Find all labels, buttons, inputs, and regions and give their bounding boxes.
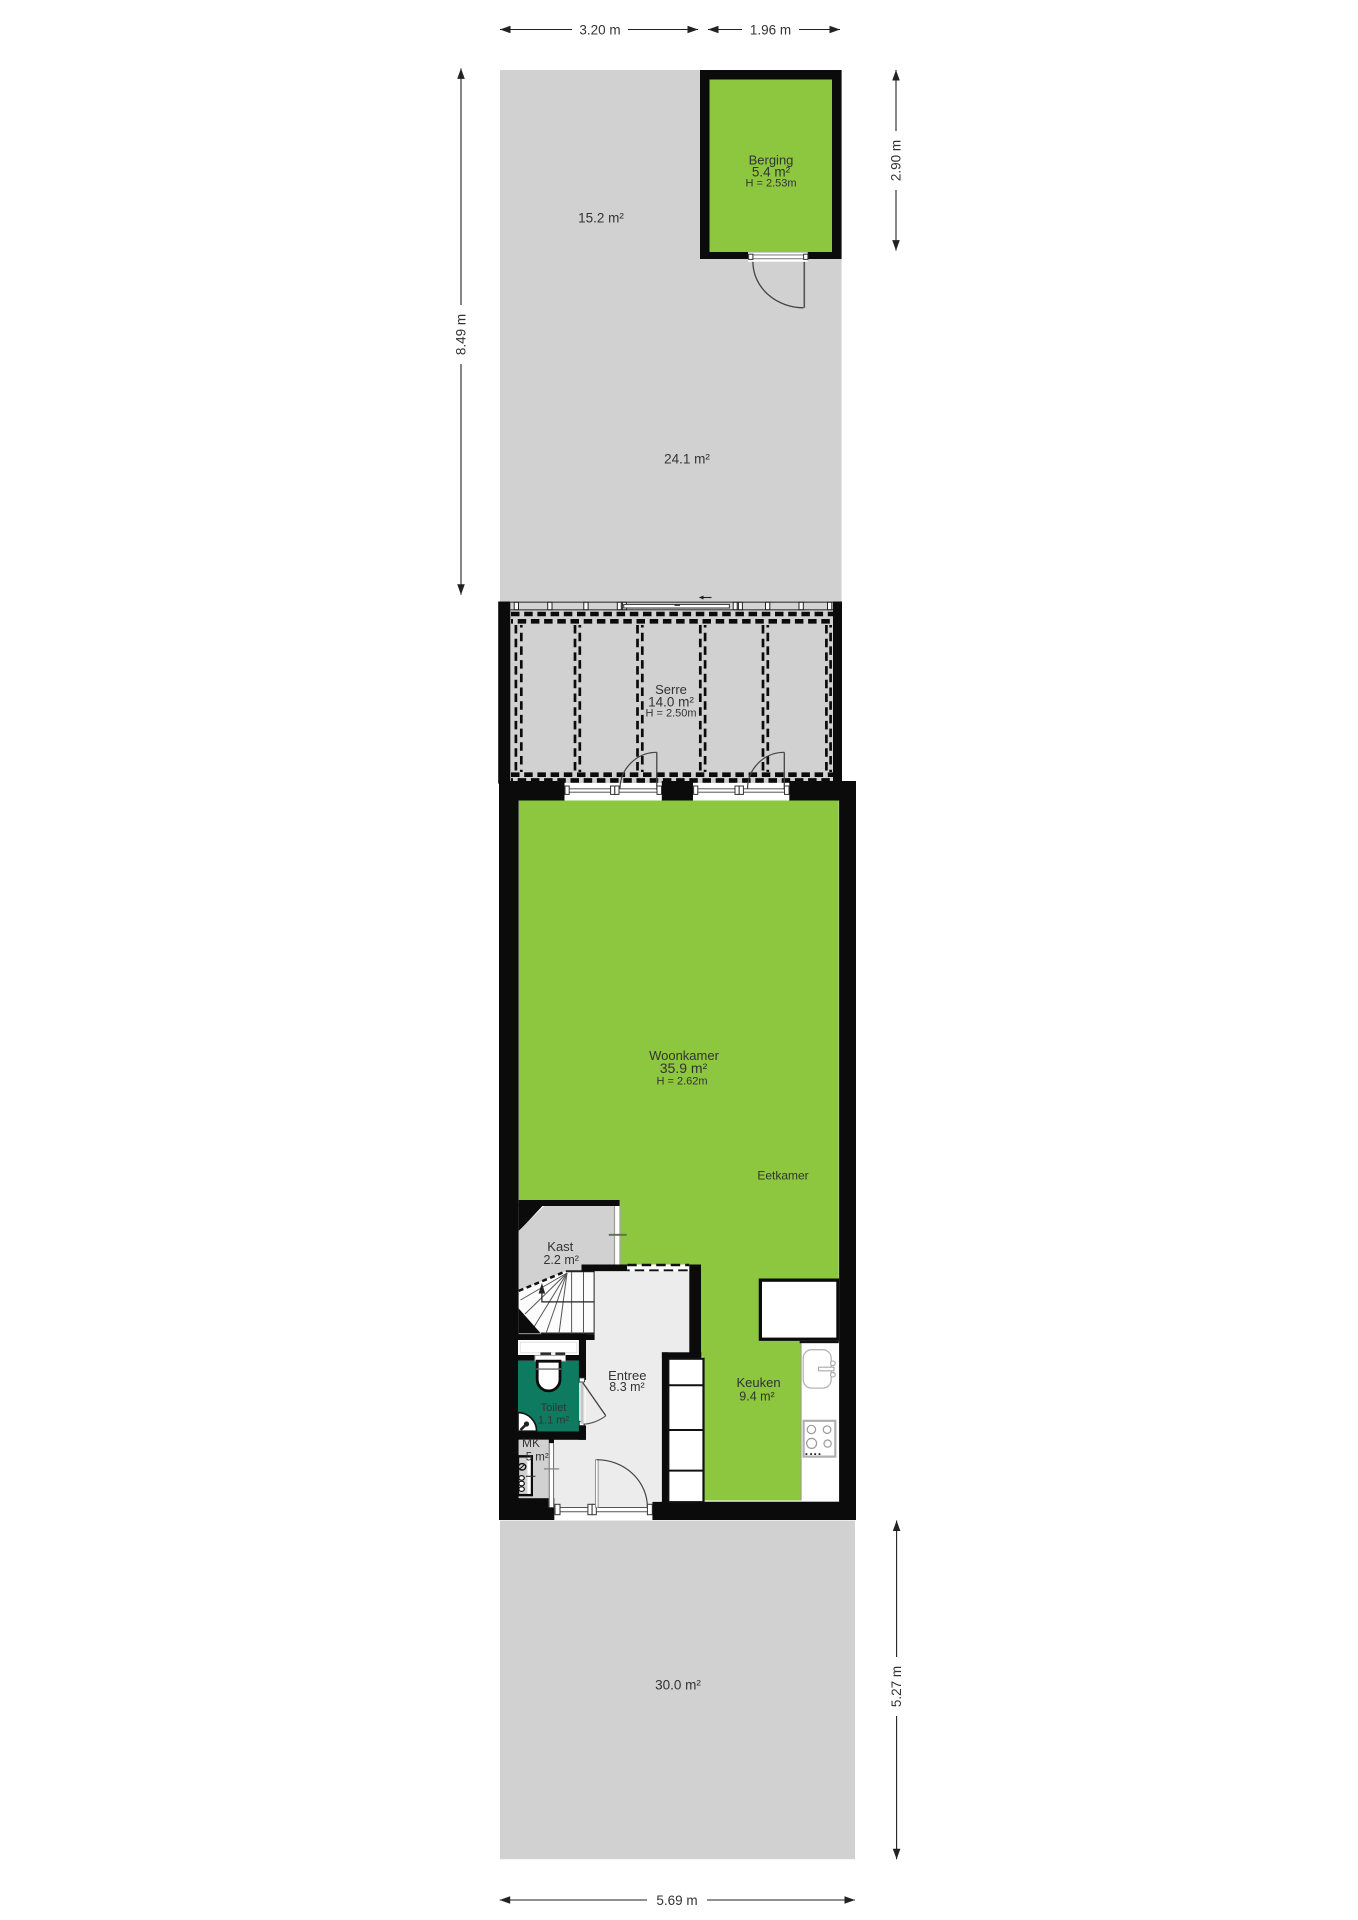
svg-text:35.9 m²: 35.9 m² bbox=[660, 1060, 708, 1076]
svg-text:5 m²: 5 m² bbox=[526, 1452, 549, 1464]
svg-text:Keuken: Keuken bbox=[736, 1375, 780, 1390]
svg-text:8.3 m²: 8.3 m² bbox=[609, 1380, 644, 1394]
svg-text:Kast: Kast bbox=[547, 1239, 573, 1254]
svg-text:2.90 m: 2.90 m bbox=[889, 140, 904, 181]
svg-text:5.27 m: 5.27 m bbox=[889, 1666, 904, 1707]
svg-text:Eetkamer: Eetkamer bbox=[757, 1169, 808, 1183]
svg-text:30.0 m²: 30.0 m² bbox=[655, 1678, 701, 1693]
svg-text:1.1 m²: 1.1 m² bbox=[538, 1415, 570, 1427]
svg-text:2.2 m²: 2.2 m² bbox=[543, 1253, 578, 1267]
svg-text:3.20 m: 3.20 m bbox=[579, 23, 620, 38]
svg-text:Toilet: Toilet bbox=[541, 1402, 567, 1414]
svg-text:8.49 m: 8.49 m bbox=[454, 314, 469, 355]
svg-text:15.2 m²: 15.2 m² bbox=[578, 211, 624, 226]
svg-text:1.96 m: 1.96 m bbox=[750, 23, 791, 38]
svg-text:24.1 m²: 24.1 m² bbox=[664, 452, 710, 467]
svg-text:9.4 m²: 9.4 m² bbox=[739, 1390, 774, 1404]
svg-text:H = 2.53m: H = 2.53m bbox=[745, 178, 796, 190]
svg-text:H = 2.50m: H = 2.50m bbox=[645, 707, 696, 719]
svg-text:5.69 m: 5.69 m bbox=[656, 1893, 697, 1908]
svg-text:H = 2.62m: H = 2.62m bbox=[656, 1076, 707, 1088]
svg-text:MK: MK bbox=[522, 1436, 540, 1450]
